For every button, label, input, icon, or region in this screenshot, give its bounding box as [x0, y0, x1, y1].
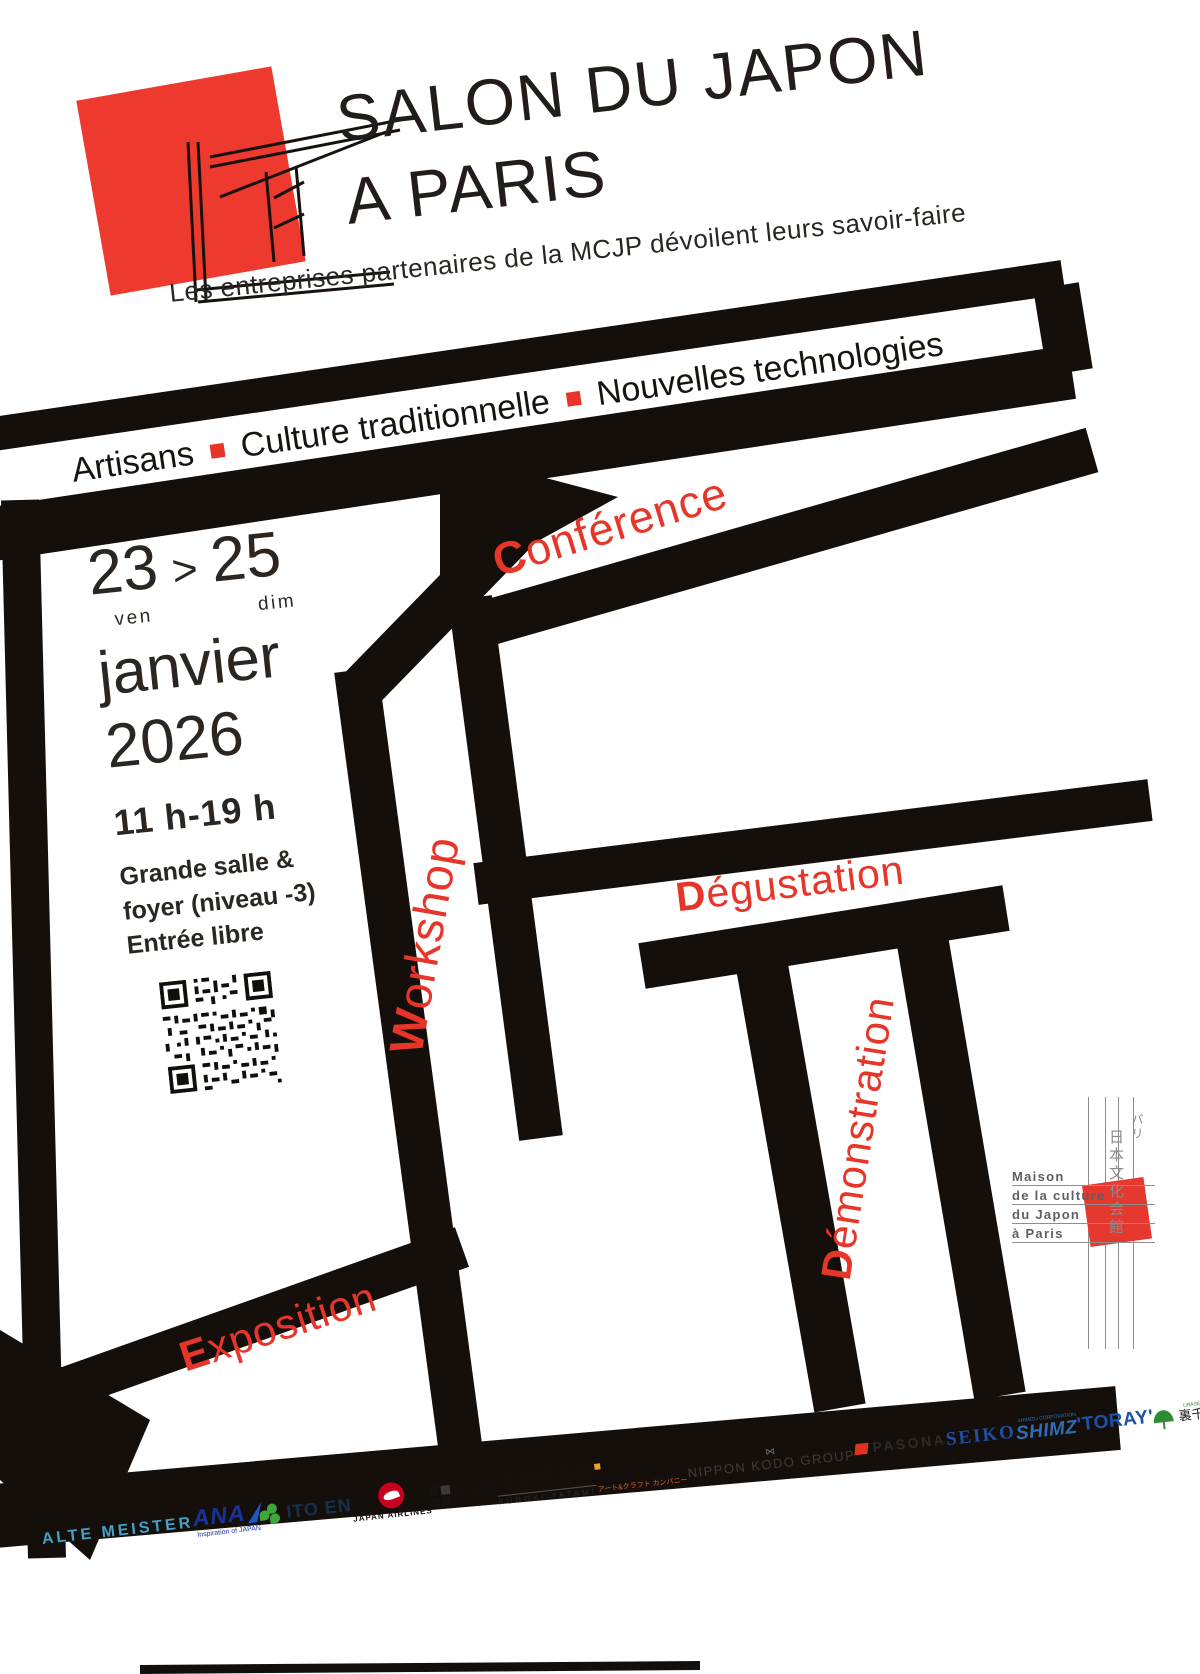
sponsor-kuboki: 久保木畳店 KUBOKI TATAMI [495, 1461, 597, 1507]
sponsor-ana: ANA Inspiration of JAPAN [191, 1499, 261, 1540]
itoen-leaf-icon [258, 1503, 282, 1527]
mcjp-line-4: à Paris [1012, 1224, 1155, 1243]
mcjp-french-name: Maison de la culture du Japon à Paris [1012, 1167, 1155, 1243]
aun-mosaic-icon [430, 1485, 452, 1507]
event-poster: SALON DU JAPON A PARIS Les entreprises p… [0, 0, 1200, 1674]
sponsor-jal: JAPAN AIRLINES [350, 1478, 433, 1524]
aun-wordmark: A-UN [455, 1482, 498, 1503]
red-square-bullet [565, 390, 581, 406]
mcjp-line-1: Maison [1012, 1167, 1155, 1186]
qr-code [159, 970, 282, 1093]
shimz-wordmark: SHIMZ [1015, 1418, 1079, 1446]
sponsor-pasona: PASONA [854, 1433, 947, 1458]
pasona-wordmark: PASONA [872, 1433, 947, 1456]
sponsor-toray: 'TORAY' [1076, 1407, 1155, 1436]
urasenke-umbrella-icon [1153, 1409, 1174, 1423]
start-day: 23 [84, 531, 161, 610]
mcjp-line-3: du Japon [1012, 1205, 1155, 1224]
start-weekday: ven [114, 605, 154, 631]
itoen-wordmark: ITO EN [285, 1496, 352, 1523]
kuretake-dot-icon [594, 1463, 601, 1470]
opening-hours: 11 h-19 h [112, 775, 375, 844]
mcjp-line-2: de la culture [1012, 1186, 1155, 1205]
mcjp-japanese-city: パリ [1129, 1113, 1146, 1141]
sponsor-aun: A-UN [430, 1480, 498, 1507]
red-square-bullet [209, 442, 225, 458]
end-day: 25 [207, 518, 284, 597]
urasenke-text-group: URASENKE 裏千家 [1177, 1400, 1200, 1424]
mcjp-logo: パリ 日本文化会館 Maison de la culture du Japon … [1005, 1085, 1155, 1360]
venue-info: Grande salle & foyer (niveau -3) Entrée … [118, 833, 387, 963]
sponsor-nippon-kodo: ⋈ NIPPON KODO GROUP [686, 1438, 856, 1482]
sponsor-shimz: SHIMIZU CORPORATION SHIMZ [1014, 1413, 1078, 1446]
pasona-flag-icon [854, 1443, 868, 1456]
end-weekday: dim [257, 590, 297, 616]
sponsor-itoen: ITO EN [258, 1495, 353, 1527]
sponsor-seiko: SEIKO [945, 1422, 1017, 1450]
jal-crane-icon [376, 1481, 405, 1510]
sponsor-alte-meister: ALTE MEISTER [41, 1515, 194, 1549]
range-arrow: > [169, 544, 200, 596]
urasenke-wordmark: 裏千家 [1178, 1406, 1200, 1424]
sponsor-kuretake: Kuretake アート&クラフト カンパニー [594, 1454, 689, 1495]
jal-wordmark: JAPAN AIRLINES [353, 1507, 433, 1525]
